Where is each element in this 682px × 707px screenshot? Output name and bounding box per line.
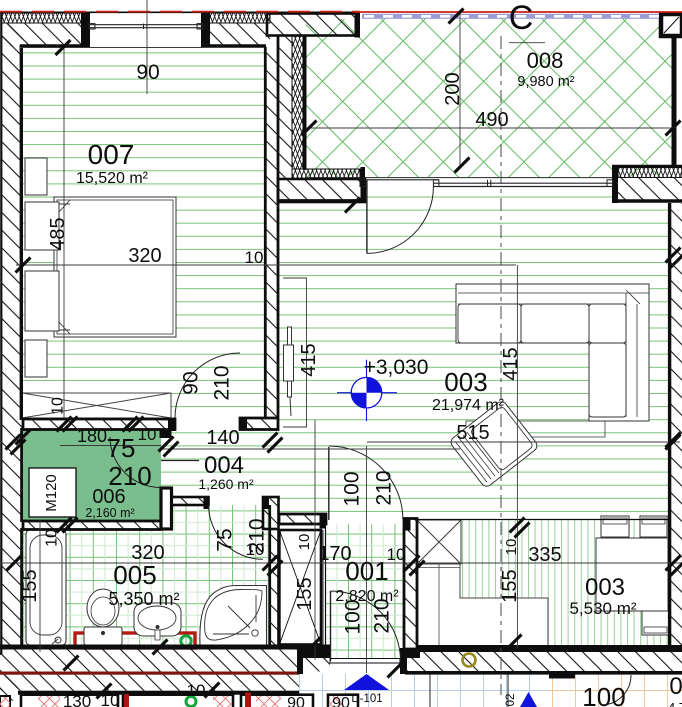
svg-text:C: C [509,0,534,37]
svg-text:155: 155 [19,569,41,602]
svg-text:003: 003 [585,574,625,601]
svg-text:320: 320 [128,245,161,267]
svg-text:10: 10 [187,681,206,700]
svg-text:100: 100 [582,682,625,707]
svg-text:02: 02 [505,694,517,707]
svg-text:0: 0 [669,673,682,700]
svg-text:5,350 m²: 5,350 m² [108,589,179,609]
svg-text:2,160 m²: 2,160 m² [85,506,134,520]
svg-text:4,7: 4,7 [668,700,682,707]
svg-text:D-101: D-101 [351,693,382,705]
svg-text:M120: M120 [43,474,60,512]
svg-text:1,260 m²: 1,260 m² [198,476,254,492]
svg-text:10: 10 [50,397,67,415]
svg-text:155: 155 [294,577,316,610]
svg-text:210: 210 [370,598,393,633]
svg-text:001: 001 [345,556,388,586]
svg-text:21,974 m²: 21,974 m² [432,397,505,414]
svg-text:005: 005 [113,560,156,590]
svg-text:415: 415 [500,347,522,380]
svg-text:006: 006 [92,486,125,508]
svg-text:100: 100 [341,599,364,634]
svg-text:008: 008 [527,48,564,73]
svg-text:90: 90 [287,695,305,707]
svg-text:10: 10 [296,534,313,551]
svg-text:75: 75 [213,528,236,551]
svg-text:90: 90 [332,695,350,707]
svg-text:210: 210 [245,518,268,553]
svg-text:004: 004 [204,452,244,479]
svg-text:10: 10 [101,691,120,707]
svg-text:485: 485 [47,217,69,250]
svg-text:10: 10 [138,425,157,444]
svg-text:10: 10 [245,248,264,267]
svg-text:335: 335 [528,544,561,566]
svg-text:155: 155 [499,569,521,602]
svg-text:003: 003 [444,367,487,397]
svg-text:15,520 m²: 15,520 m² [76,170,149,187]
svg-text:130: 130 [63,692,91,707]
svg-text:10: 10 [44,529,61,547]
svg-text:210: 210 [372,470,395,505]
svg-text:5,530 m²: 5,530 m² [569,599,636,618]
svg-text:415: 415 [298,343,320,376]
svg-text:90: 90 [136,61,159,84]
svg-text:10: 10 [387,545,406,564]
svg-text:210: 210 [210,365,233,400]
svg-text:90: 90 [179,371,202,394]
svg-text:9,980 m²: 9,980 m² [517,74,574,90]
svg-text:140: 140 [206,427,239,449]
svg-text:515: 515 [456,422,489,444]
svg-text:75: 75 [107,433,136,463]
svg-text:007: 007 [88,139,135,170]
svg-text:490: 490 [475,109,508,131]
svg-text:+3,030: +3,030 [364,356,429,379]
svg-text:100: 100 [340,471,363,506]
svg-text:200: 200 [442,72,464,105]
svg-text:10: 10 [503,539,520,556]
svg-text:180: 180 [77,426,107,446]
